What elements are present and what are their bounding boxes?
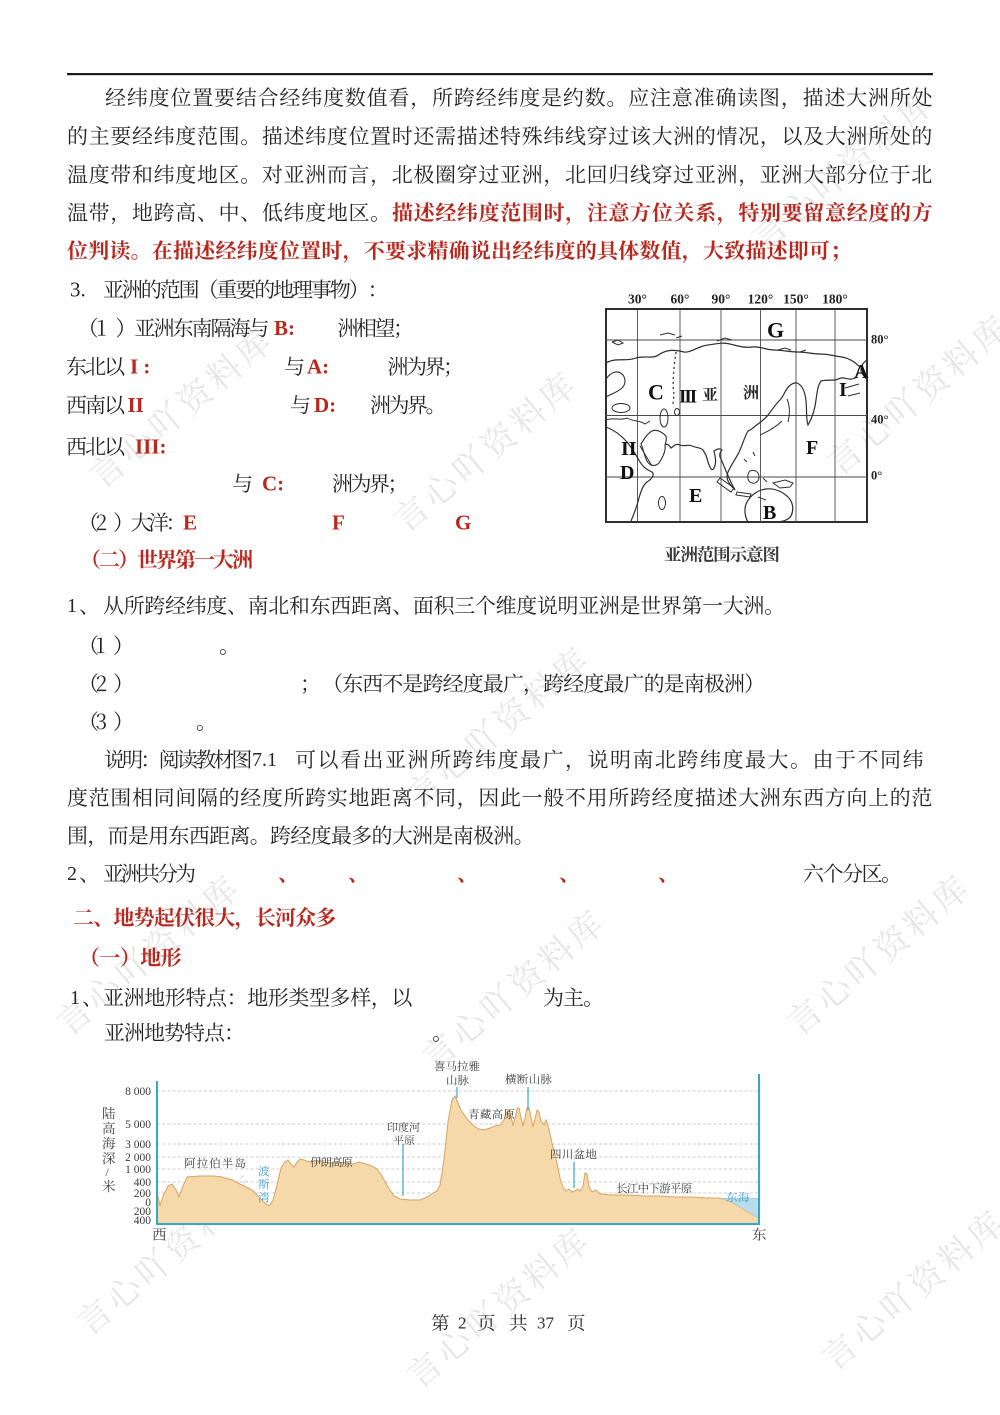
svg-text:5 000: 5 000 (125, 1119, 151, 1131)
svg-text:180°: 180° (822, 292, 848, 307)
svg-text:II: II (621, 438, 637, 460)
svg-text:30°: 30° (628, 292, 647, 307)
svg-text:F: F (806, 437, 818, 459)
svg-text:1: 1 (67, 595, 77, 617)
svg-text:400: 400 (134, 1215, 152, 1227)
svg-text:D: D (620, 462, 634, 484)
svg-text:90°: 90° (712, 292, 731, 307)
svg-text:7.1: 7.1 (252, 749, 277, 771)
svg-text:III:: III: (135, 434, 167, 458)
svg-text:B:: B: (274, 316, 295, 340)
svg-text:E: E (689, 485, 702, 507)
svg-text:1: 1 (70, 987, 80, 1009)
svg-text:C: C (648, 380, 664, 405)
svg-text:2 000: 2 000 (125, 1152, 151, 1164)
svg-text:2: 2 (67, 863, 77, 885)
svg-text:E: E (183, 510, 197, 534)
svg-text:D:: D: (314, 393, 336, 417)
svg-text:2: 2 (458, 1314, 467, 1333)
svg-text:A:: A: (307, 354, 329, 378)
svg-text:0°: 0° (871, 468, 882, 482)
svg-text:40°: 40° (871, 412, 889, 426)
svg-text:60°: 60° (671, 292, 690, 307)
svg-text:150°: 150° (783, 292, 809, 307)
svg-text:F: F (332, 510, 345, 534)
svg-text:I: I (839, 379, 847, 401)
svg-text:II: II (128, 393, 144, 417)
svg-text:3 000: 3 000 (125, 1139, 151, 1151)
svg-text:III: III (679, 387, 697, 408)
svg-text:G: G (767, 318, 784, 343)
svg-text:3.: 3. (70, 277, 86, 301)
svg-text:C:: C: (262, 471, 284, 495)
svg-text:80°: 80° (871, 332, 889, 346)
svg-text:1 000: 1 000 (125, 1164, 151, 1176)
svg-text:37: 37 (537, 1314, 555, 1333)
svg-text:8 000: 8 000 (125, 1086, 151, 1098)
svg-text:B: B (763, 502, 776, 524)
svg-text:I :: I : (130, 354, 150, 378)
svg-text:A: A (854, 361, 869, 383)
svg-text:G: G (455, 510, 471, 534)
svg-text:120°: 120° (748, 292, 774, 307)
